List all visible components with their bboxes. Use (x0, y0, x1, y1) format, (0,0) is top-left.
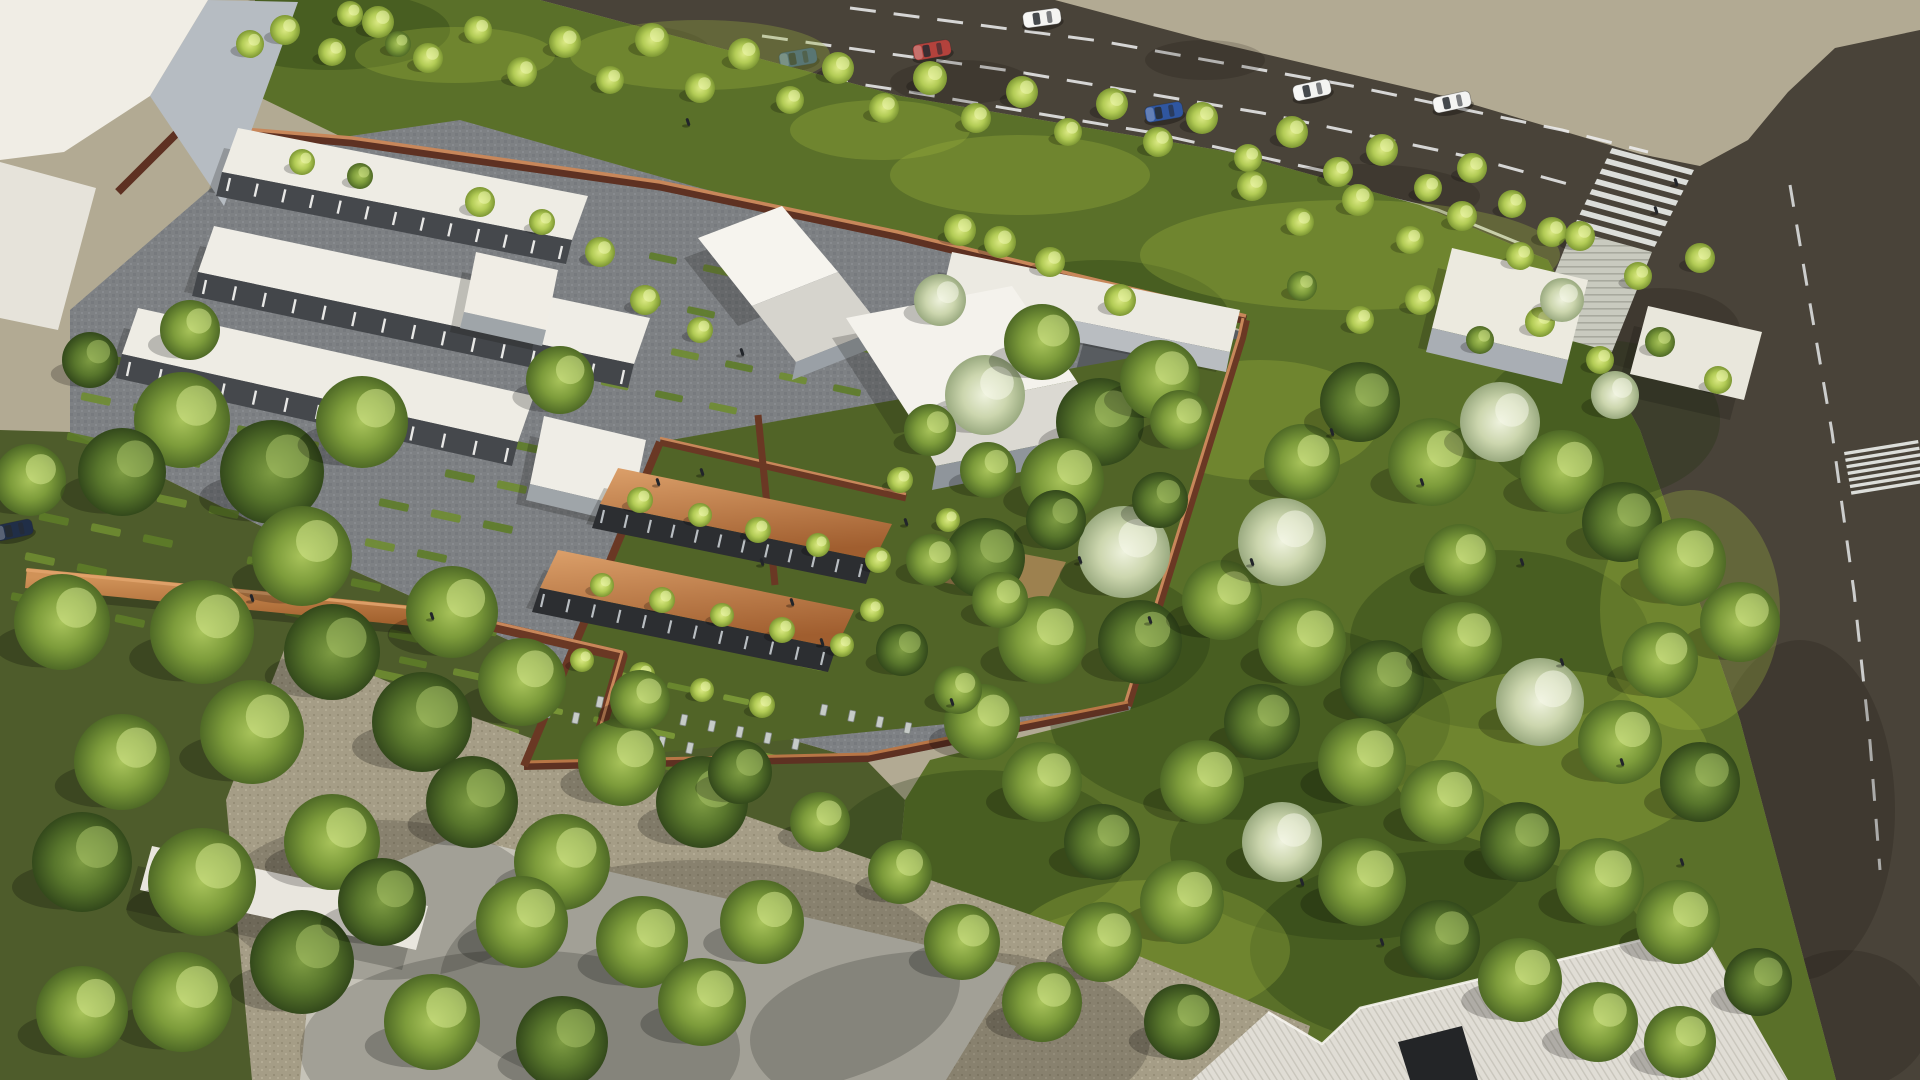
site-rendering (0, 0, 1920, 1080)
aerial-render-stage (0, 0, 1920, 1080)
